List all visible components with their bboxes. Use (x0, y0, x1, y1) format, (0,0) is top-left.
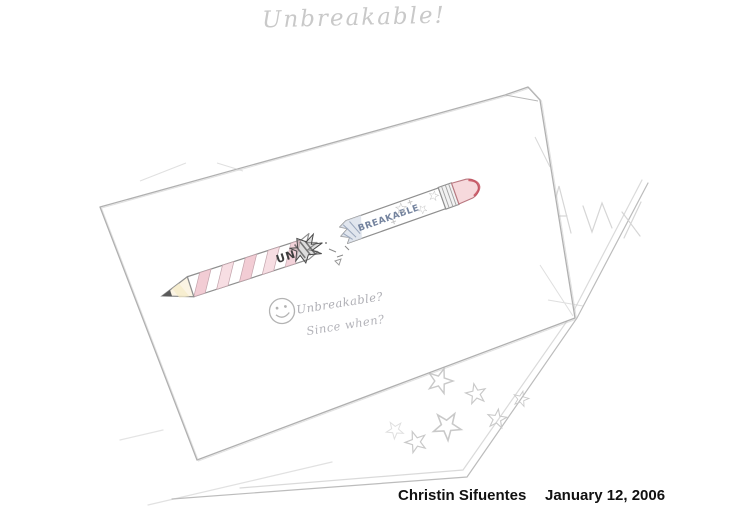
caption-row: Christin Sifuentes January 12, 2006 (0, 487, 745, 507)
artist-name: Christin Sifuentes (398, 487, 526, 504)
pencil-sketch-svg: UN BREAKABLE (0, 0, 745, 523)
artwork-date: January 12, 2006 (545, 487, 665, 504)
foreground-paper-sheet (100, 87, 583, 461)
scanned-drawing-page: UN BREAKABLE (0, 0, 745, 523)
handwritten-title: Unbreakable! (262, 3, 446, 34)
